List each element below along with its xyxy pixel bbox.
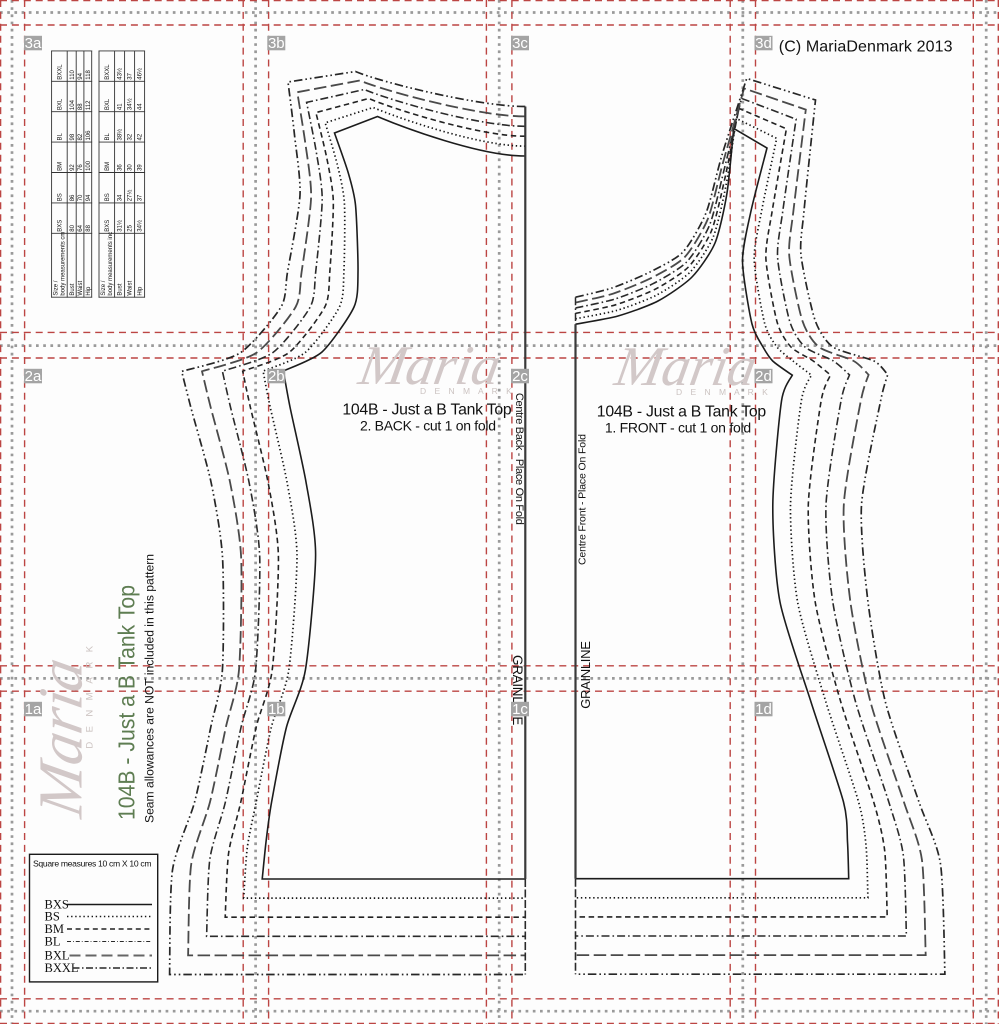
svg-text:Hip: Hip <box>86 286 92 296</box>
svg-text:Waist: Waist <box>128 280 134 295</box>
svg-text:64: 64 <box>78 224 84 231</box>
svg-text:1c: 1c <box>512 701 528 718</box>
svg-text:39: 39 <box>138 164 144 171</box>
svg-text:70: 70 <box>78 194 84 201</box>
svg-text:Size /: Size / <box>101 280 107 295</box>
svg-text:1d: 1d <box>755 701 772 718</box>
svg-text:BM: BM <box>105 162 111 171</box>
svg-text:BXL: BXL <box>105 98 111 110</box>
svg-text:34: 34 <box>118 194 124 201</box>
svg-text:112: 112 <box>86 100 92 110</box>
svg-text:body measurements inc: body measurements inc <box>108 232 114 296</box>
svg-text:42: 42 <box>138 133 144 140</box>
svg-text:BXL: BXL <box>58 98 64 110</box>
svg-text:80: 80 <box>70 224 76 231</box>
svg-text:88: 88 <box>86 224 92 231</box>
svg-text:BXS: BXS <box>105 220 111 232</box>
svg-text:37: 37 <box>138 194 144 201</box>
svg-text:86: 86 <box>70 194 76 201</box>
svg-text:37: 37 <box>128 72 134 79</box>
svg-text:34½: 34½ <box>137 220 144 232</box>
svg-text:BXXL: BXXL <box>58 64 64 80</box>
svg-text:BM: BM <box>58 162 64 171</box>
svg-text:BXS: BXS <box>58 220 64 232</box>
svg-text:Bust: Bust <box>70 283 76 295</box>
svg-text:BL: BL <box>45 935 61 949</box>
svg-text:2. BACK - cut 1 on fold: 2. BACK - cut 1 on fold <box>360 418 496 434</box>
svg-text:44: 44 <box>138 103 144 110</box>
svg-text:104B - Just a B Tank Top: 104B - Just a B Tank Top <box>114 585 140 820</box>
svg-text:Bust: Bust <box>118 283 124 295</box>
svg-text:104B - Just a B Tank Top: 104B - Just a B Tank Top <box>597 404 767 421</box>
svg-text:104B - Just a B Tank Top: 104B - Just a B Tank Top <box>342 402 512 419</box>
svg-text:D E N M A R K: D E N M A R K <box>420 386 515 396</box>
svg-text:25: 25 <box>128 224 134 231</box>
svg-text:BS: BS <box>105 193 111 201</box>
svg-text:D E N M A R K: D E N M A R K <box>85 643 96 749</box>
svg-text:2b: 2b <box>268 368 285 385</box>
svg-text:BXXL: BXXL <box>105 64 111 80</box>
svg-text:38½: 38½ <box>117 129 124 141</box>
svg-text:2d: 2d <box>755 368 772 385</box>
svg-text:Centre Front - Place On Fold: Centre Front - Place On Fold <box>577 434 589 565</box>
svg-text:3c: 3c <box>512 35 528 52</box>
svg-text:43½: 43½ <box>117 68 124 80</box>
svg-text:46½: 46½ <box>137 68 144 80</box>
svg-text:88: 88 <box>78 103 84 110</box>
svg-text:2c: 2c <box>512 368 528 385</box>
svg-text:D E N M A R K: D E N M A R K <box>676 387 771 397</box>
svg-text:3a: 3a <box>25 35 42 52</box>
svg-text:92: 92 <box>70 164 76 171</box>
svg-text:118: 118 <box>86 69 92 79</box>
svg-text:2a: 2a <box>25 368 42 385</box>
svg-text:94: 94 <box>86 194 92 201</box>
svg-text:Square measures 10 cm X 10 cm: Square measures 10 cm X 10 cm <box>33 859 152 869</box>
svg-text:Size /: Size / <box>54 280 60 295</box>
svg-text:Centre Back - Place On Fold: Centre Back - Place On Fold <box>513 393 525 525</box>
svg-text:3d: 3d <box>755 35 772 52</box>
svg-text:27½: 27½ <box>127 190 134 202</box>
svg-text:110: 110 <box>70 69 76 79</box>
svg-text:BS: BS <box>58 193 64 201</box>
svg-text:30: 30 <box>128 164 134 171</box>
svg-text:1b: 1b <box>268 701 285 718</box>
svg-text:BL: BL <box>105 132 111 140</box>
svg-text:(C) MariaDenmark 2013: (C) MariaDenmark 2013 <box>779 39 953 56</box>
svg-text:3b: 3b <box>268 35 285 52</box>
svg-text:36: 36 <box>118 164 124 171</box>
svg-text:1a: 1a <box>25 701 42 718</box>
svg-text:body measurements cm: body measurements cm <box>60 232 66 296</box>
svg-text:106: 106 <box>86 130 92 141</box>
svg-text:82: 82 <box>78 133 84 140</box>
svg-text:Seam allowances are NOT includ: Seam allowances are NOT included in this… <box>145 554 157 823</box>
svg-text:100: 100 <box>86 160 92 171</box>
svg-text:31½: 31½ <box>117 220 124 232</box>
svg-text:94: 94 <box>78 72 84 79</box>
svg-text:BL: BL <box>58 132 64 140</box>
svg-text:34½: 34½ <box>127 98 134 110</box>
svg-text:104: 104 <box>70 99 76 110</box>
svg-text:76: 76 <box>78 164 84 171</box>
svg-text:41: 41 <box>118 103 124 110</box>
svg-text:Hip: Hip <box>138 286 144 296</box>
svg-text:1. FRONT - cut 1 on fold: 1. FRONT - cut 1 on fold <box>605 420 751 436</box>
svg-text:32: 32 <box>128 133 134 140</box>
svg-text:Waist: Waist <box>78 280 84 295</box>
svg-text:98: 98 <box>70 133 76 140</box>
svg-text:GRAINLINE: GRAINLINE <box>578 641 593 709</box>
